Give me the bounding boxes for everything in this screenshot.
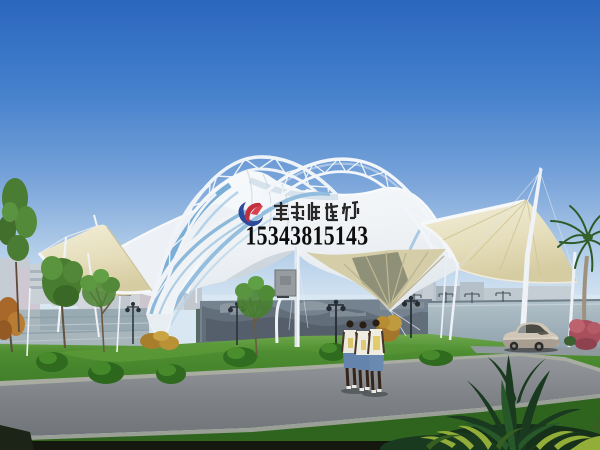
svg-text:15343815143: 15343815143 xyxy=(246,221,369,251)
